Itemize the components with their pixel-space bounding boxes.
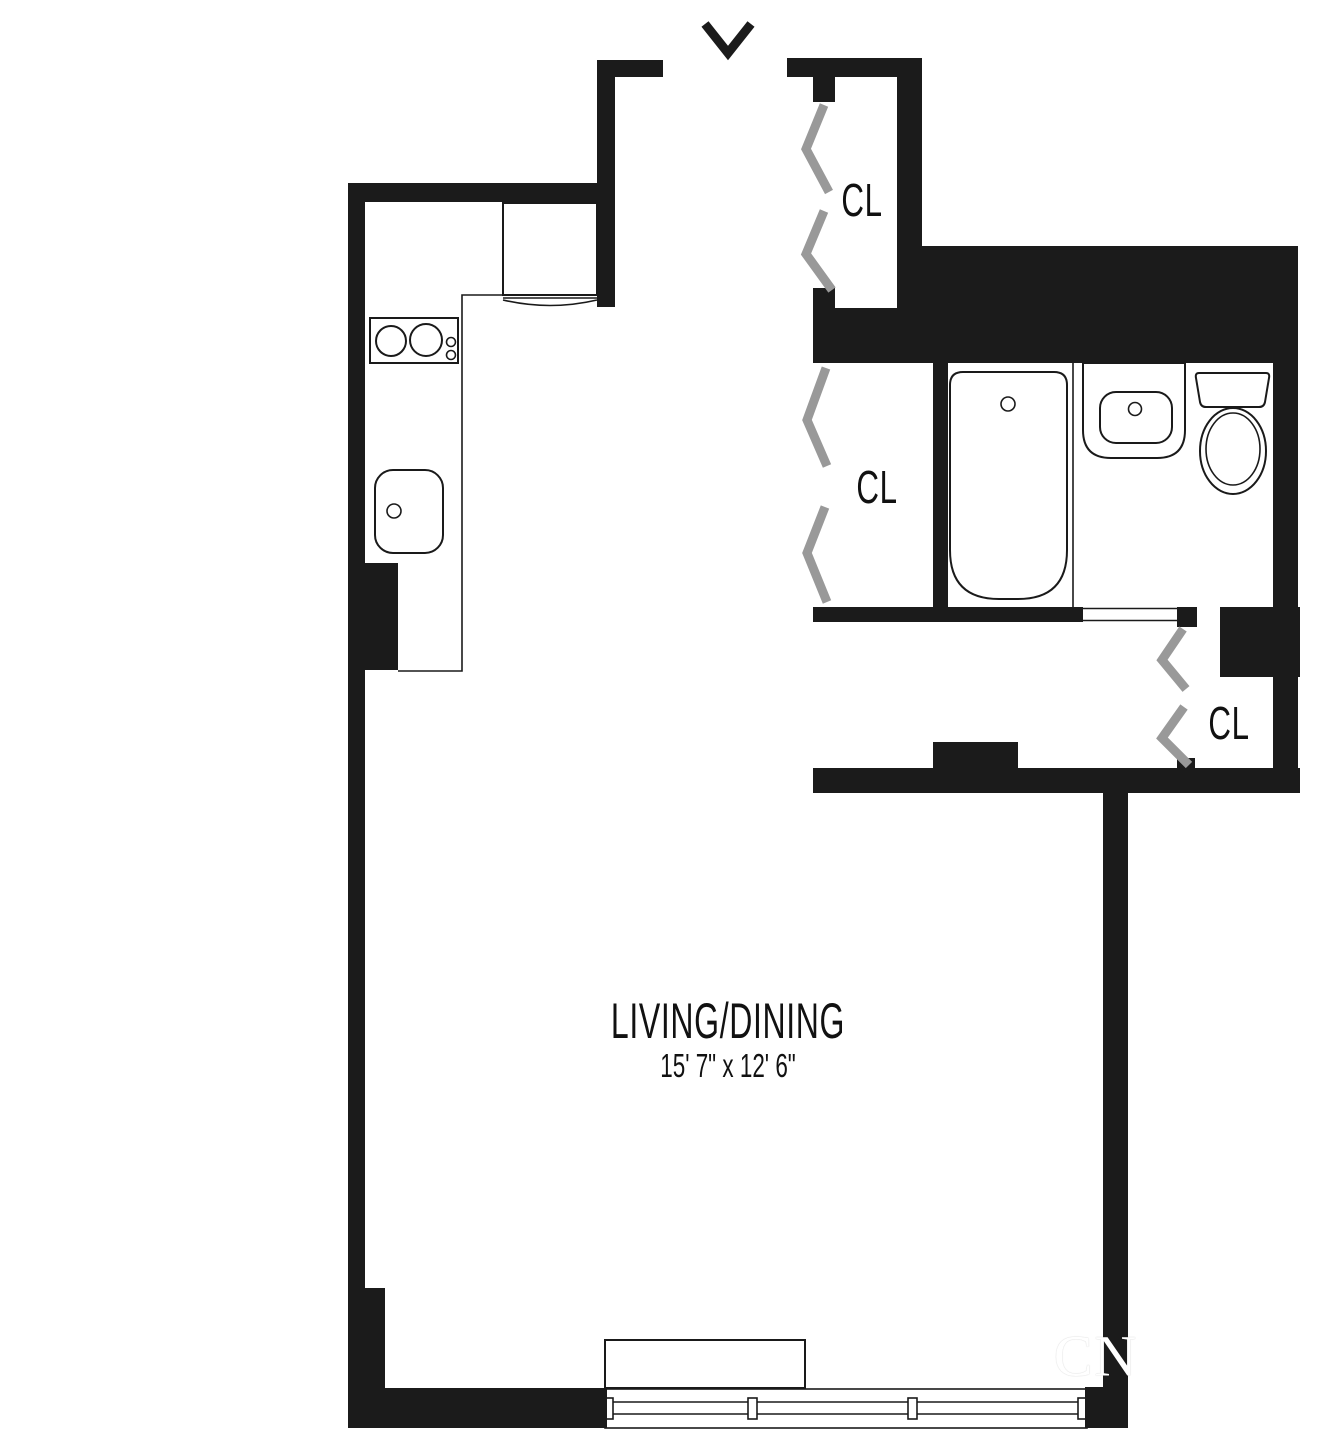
wall-hall-block xyxy=(933,742,1018,768)
refrigerator xyxy=(503,203,597,295)
window-mullion xyxy=(748,1398,757,1419)
wall-bath-west-divider xyxy=(933,363,948,608)
wall-closet2-jamb xyxy=(813,288,835,363)
bathtub xyxy=(950,372,1067,599)
closet2-door-fold xyxy=(807,507,827,602)
wall-west-lower xyxy=(348,1288,385,1389)
wall-hall-south xyxy=(813,768,1300,793)
wall-entry-left-bar xyxy=(597,60,663,77)
toilet-tank xyxy=(1196,373,1269,407)
walls xyxy=(348,58,1300,1428)
closet2-door-fold xyxy=(807,368,827,466)
wall-bathdoor-jamb xyxy=(1177,607,1197,627)
closet1-door-fold xyxy=(806,105,829,192)
watermark: CN xyxy=(1054,1323,1139,1390)
wall-kitchen-east xyxy=(597,60,615,307)
refrigerator-door-arc xyxy=(503,300,597,306)
room-dimensions: 15' 7" x 12' 6" xyxy=(660,1047,796,1085)
room-label-living-dining: LIVING/DINING xyxy=(611,992,845,1050)
entry-arrow-icon xyxy=(705,24,751,53)
wall-southeast-corner-block xyxy=(1085,1387,1128,1428)
stove-range xyxy=(370,318,458,363)
stove-knob xyxy=(447,338,456,347)
wall-kitchen-north xyxy=(348,183,607,202)
wall-bath-south xyxy=(813,607,1083,622)
wall-west xyxy=(348,183,365,1289)
toilet-bowl xyxy=(1200,408,1266,494)
wall-east xyxy=(1273,363,1298,793)
closet3-door-fold xyxy=(1162,629,1186,689)
closet-label-3: CL xyxy=(1208,696,1249,750)
window-frame xyxy=(605,1389,1087,1428)
bathroom-door-opening xyxy=(1083,609,1177,621)
wall-closet1-jamb xyxy=(813,77,835,102)
kitchen-sink-faucet xyxy=(387,504,401,518)
stove-knob xyxy=(447,351,456,360)
closet-label-1: CL xyxy=(841,173,882,227)
bathtub-faucet xyxy=(1001,397,1015,411)
wall-east-lower xyxy=(1103,792,1128,1392)
vanity-faucet xyxy=(1129,403,1142,416)
floor-plan-drawing xyxy=(0,0,1328,1446)
toilet-bowl-inner xyxy=(1206,413,1260,485)
closet3-door-fold xyxy=(1162,707,1189,765)
window-group xyxy=(604,1340,1087,1428)
kitchen-sink xyxy=(375,470,443,553)
wall-south-left xyxy=(348,1388,607,1428)
stove-burner xyxy=(376,326,406,356)
floor-plan: CL CL CL LIVING/DINING 15' 7" x 12' 6" C… xyxy=(0,0,1328,1446)
closet-label-2: CL xyxy=(856,460,897,514)
vanity-sink xyxy=(1100,392,1172,443)
stove-burner xyxy=(410,324,442,356)
window-mullion xyxy=(908,1398,917,1419)
kitchen-fixtures xyxy=(370,203,597,671)
closet1-door-fold xyxy=(806,211,832,290)
wall-kitchen-plumbing-block xyxy=(350,563,398,670)
wall-bath-north-band xyxy=(922,246,1298,363)
bathroom-fixtures xyxy=(950,363,1269,607)
window-sill xyxy=(605,1340,805,1388)
